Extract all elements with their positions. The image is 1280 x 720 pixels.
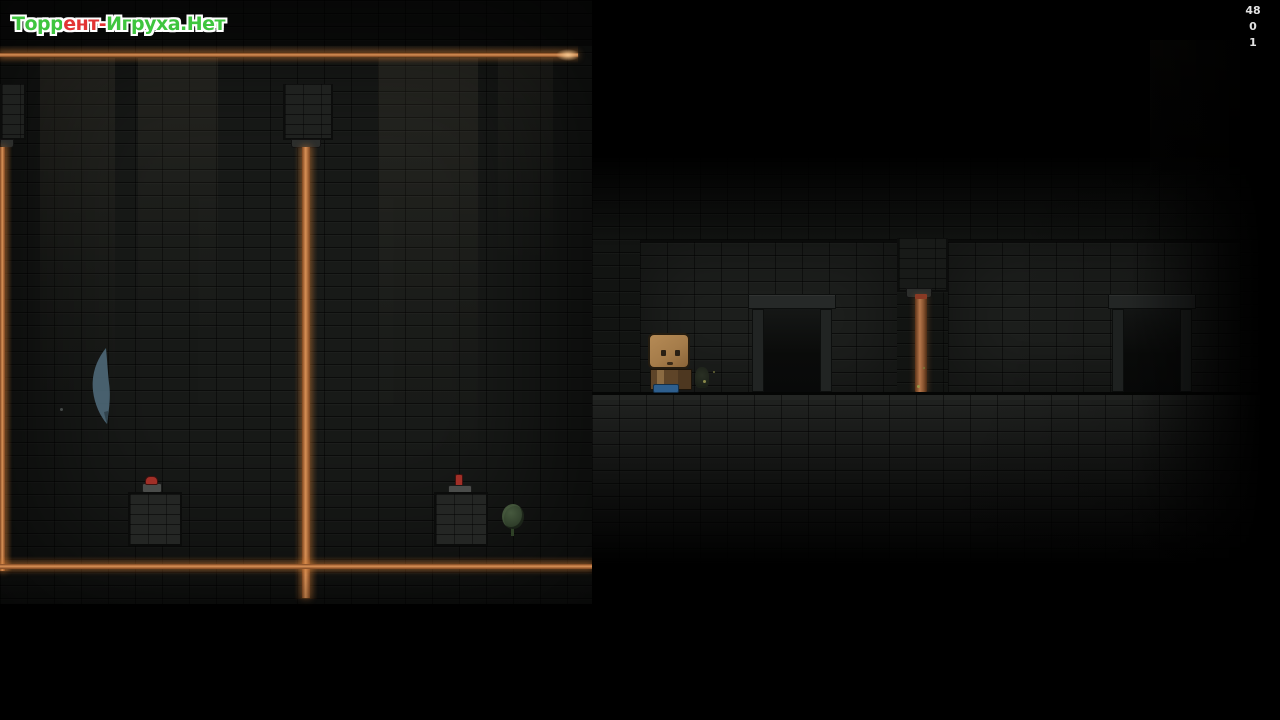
- light-shaft: [138, 58, 218, 378]
- game-screen[interactable]: Торрент-Игруха.Нет 48 0 1: [0, 0, 1280, 720]
- lever-pedestal: [434, 492, 488, 546]
- firefly-speck: [923, 367, 925, 369]
- door-post: [1112, 309, 1124, 392]
- laser-beam-top: [0, 53, 578, 57]
- ceiling-block: [897, 238, 948, 292]
- pipe: [915, 296, 927, 392]
- light-shaft: [378, 58, 478, 518]
- light-shaft: [1150, 40, 1240, 240]
- player-character[interactable]: [645, 329, 695, 393]
- door-lintel: [748, 294, 836, 309]
- door-post: [752, 309, 764, 392]
- character-feet: [653, 384, 679, 393]
- door[interactable]: [748, 294, 836, 392]
- feather-sprite: [84, 346, 120, 426]
- interior-wall: [948, 240, 1240, 392]
- dark-bush: [695, 367, 709, 388]
- watermark: Торрент-Игруха.Нет: [12, 13, 225, 35]
- debug-counters: 48 0 1: [1240, 3, 1266, 51]
- button-pedestal: [128, 492, 182, 546]
- counter-value: 48: [1240, 3, 1266, 19]
- firefly-speck: [713, 371, 715, 373]
- pipe-cap: [915, 294, 927, 299]
- character-shading: [678, 370, 691, 389]
- firefly-speck: [703, 380, 706, 383]
- door-opening: [1124, 309, 1180, 392]
- dust-speck: [60, 408, 63, 411]
- door-opening: [764, 309, 820, 392]
- floor-edge: [592, 392, 1280, 395]
- door-post: [820, 309, 832, 392]
- red-button[interactable]: [145, 476, 158, 485]
- plant: [502, 504, 524, 529]
- laser-endcap: [556, 49, 580, 61]
- character-eye: [661, 350, 666, 356]
- laser-beam-bottom: [0, 564, 592, 569]
- ceiling-block: [283, 84, 333, 140]
- watermark-segment: ент-: [63, 13, 106, 35]
- firefly-speck: [917, 385, 920, 388]
- ceiling-block: [0, 84, 26, 140]
- laser-beam-vertical: [0, 147, 5, 571]
- watermark-segment: Игруха.Нет: [106, 13, 225, 35]
- light-shaft: [498, 58, 553, 298]
- right-structure: [592, 0, 1280, 720]
- door[interactable]: [1108, 294, 1196, 392]
- left-room-wall: [0, 0, 592, 604]
- character-eye: [675, 350, 680, 356]
- watermark-segment: Торр: [12, 13, 63, 35]
- counter-value: 0: [1240, 19, 1266, 35]
- door-lintel: [1108, 294, 1196, 309]
- floor-fade: [592, 400, 1280, 612]
- door-post: [1180, 309, 1192, 392]
- laser-beam-vertical: [302, 147, 310, 598]
- counter-value: 1: [1240, 35, 1266, 51]
- character-mouth: [667, 362, 673, 365]
